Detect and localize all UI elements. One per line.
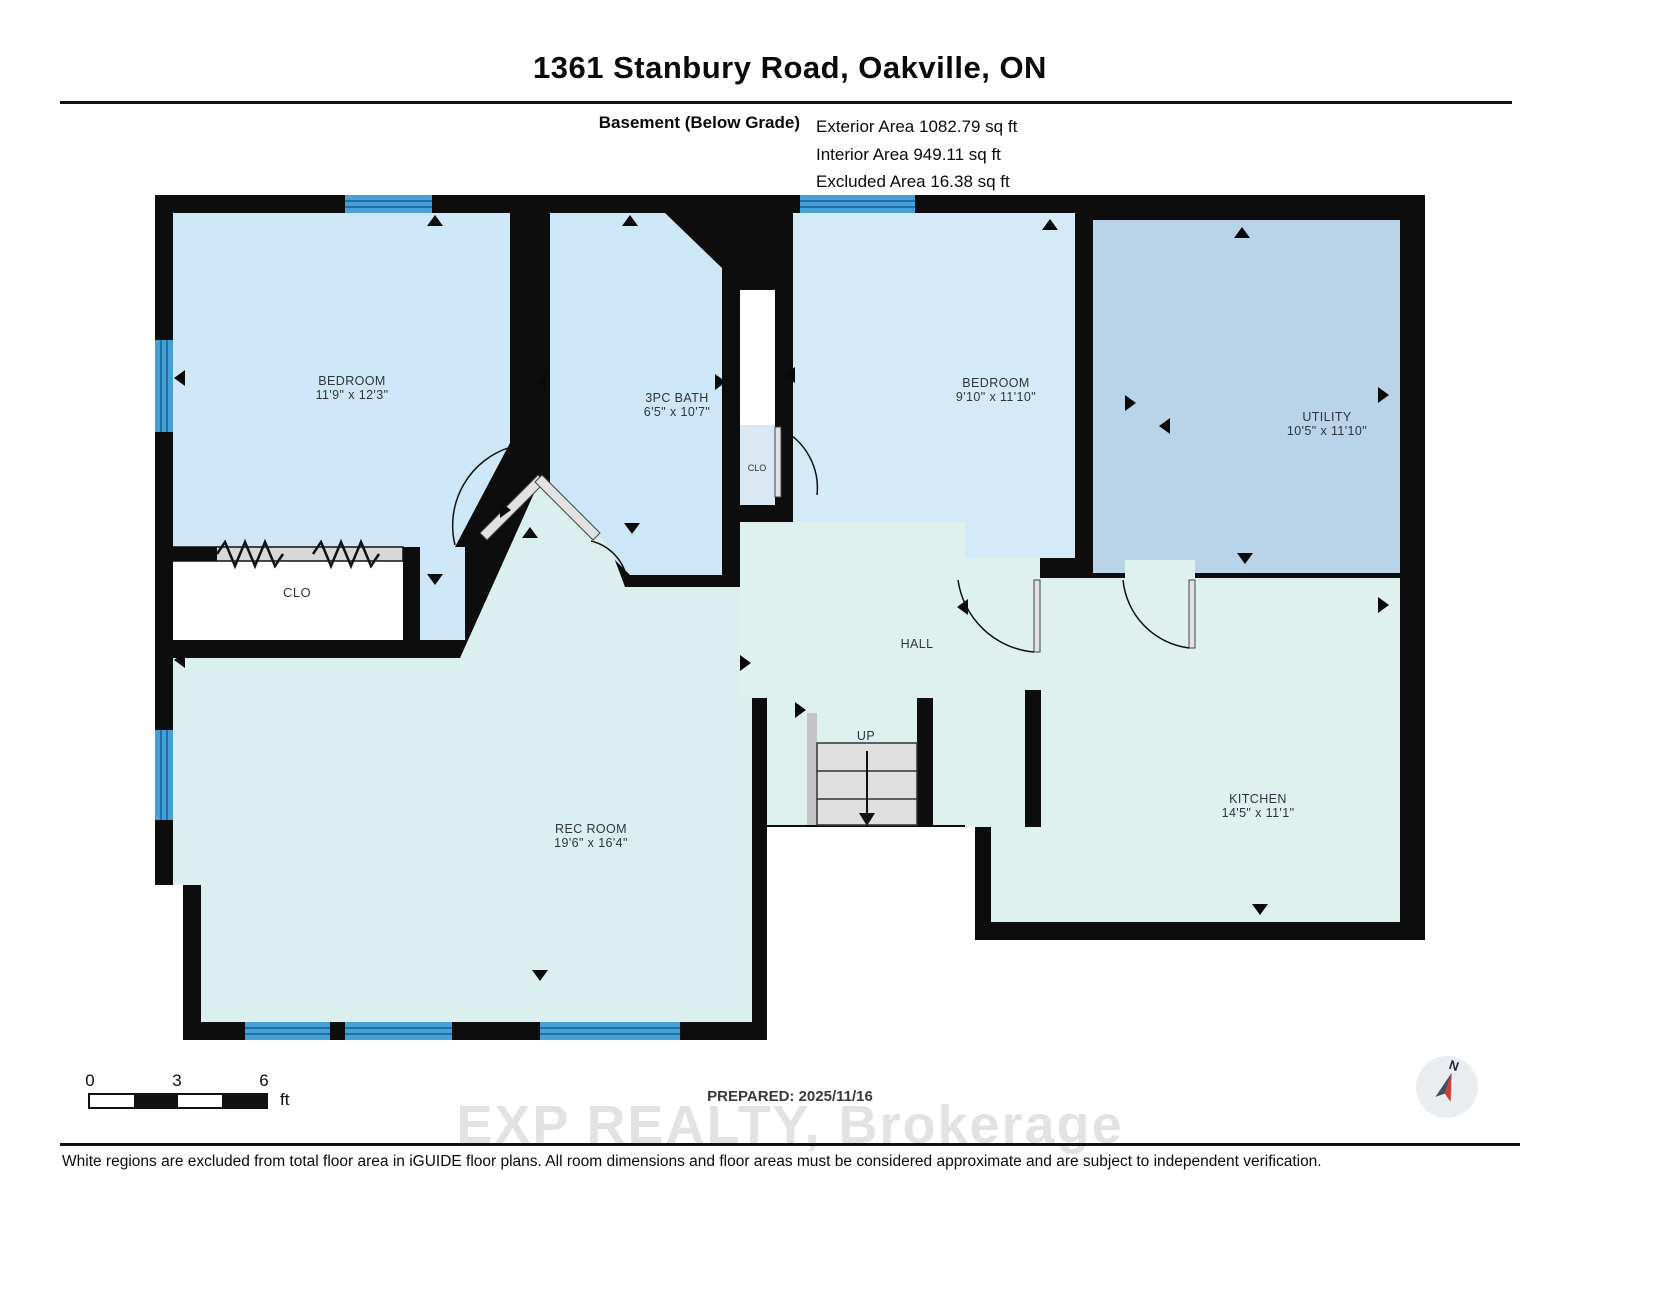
closet-track-stub xyxy=(173,547,217,561)
scale-tick: 3 xyxy=(172,1071,181,1091)
label-kitchen: KITCHEN 14'5" x 11'1" xyxy=(1222,792,1295,820)
label-utility: UTILITY 10'5" x 11'10" xyxy=(1287,410,1367,438)
area-summary: Exterior Area 1082.79 sq ft Interior Are… xyxy=(816,113,1017,196)
footer-divider xyxy=(60,1143,1520,1146)
utility-doorway xyxy=(1125,560,1195,578)
excluded-area: Excluded Area 16.38 sq ft xyxy=(816,168,1017,196)
stair-right-wall xyxy=(917,698,933,827)
prepared-date: PREPARED: 2025/11/16 xyxy=(590,1088,990,1105)
label-bedroom1: BEDROOM 11'9" x 12'3" xyxy=(316,374,389,402)
closet1-right-wall xyxy=(403,547,420,640)
label-closet-bedroom: CLO xyxy=(283,586,311,600)
label-rec-room: REC ROOM 19'6" x 16'4" xyxy=(554,822,628,850)
exterior-area: Exterior Area 1082.79 sq ft xyxy=(816,113,1017,141)
label-stairs-up: UP xyxy=(857,729,875,743)
scale-bar xyxy=(88,1093,268,1109)
scale-tick: 6 xyxy=(259,1071,268,1091)
kitchen-wall-stub xyxy=(1025,690,1041,827)
footer-disclaimer: White regions are excluded from total fl… xyxy=(62,1153,1322,1171)
bedroom2-doorway xyxy=(958,558,1040,578)
room-closet1-area xyxy=(173,561,403,640)
interior-area: Interior Area 949.11 sq ft xyxy=(816,141,1017,169)
floorplan-svg xyxy=(155,195,1425,1040)
label-bedroom2: BEDROOM 9'10" x 11'10" xyxy=(956,376,1036,404)
scale-tick: 0 xyxy=(85,1071,94,1091)
page-title: 1361 Stanbury Road, Oakville, ON xyxy=(0,50,1580,86)
excluded-strip xyxy=(740,290,775,425)
stair-stringer xyxy=(807,713,817,825)
header-divider xyxy=(60,101,1512,104)
floorplan-page: 1361 Stanbury Road, Oakville, ON Basemen… xyxy=(0,0,1680,1298)
label-closet-hall: CLO xyxy=(748,461,767,475)
label-hall: HALL xyxy=(901,637,934,651)
floor-label: Basement (Below Grade) xyxy=(360,113,800,133)
room-utility-area xyxy=(1093,220,1400,573)
floorplan-canvas xyxy=(155,195,1425,1040)
compass: N xyxy=(1412,1052,1482,1122)
label-bath: 3PC BATH 6'5" x 10'7" xyxy=(644,391,710,419)
